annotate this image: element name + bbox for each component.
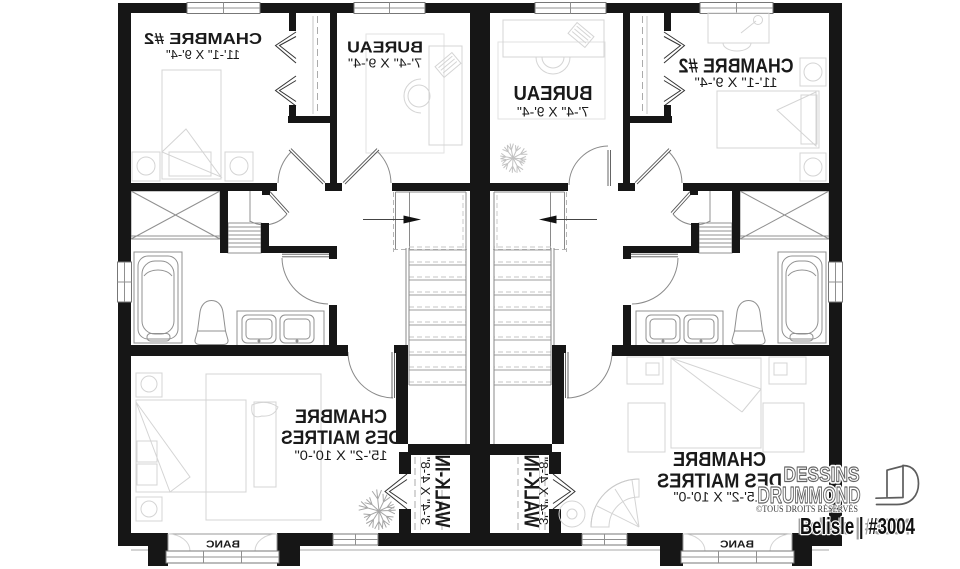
svg-text:3'-4" X 4'-8": 3'-4" X 4'-8" (418, 457, 433, 525)
svg-text:BANC: BANC (720, 539, 754, 551)
svg-text:BANC: BANC (206, 539, 240, 551)
svg-text:DES MAITRES: DES MAITRES (281, 428, 401, 449)
svg-text:BUREAU: BUREAU (514, 83, 593, 105)
svg-text:11'-1" X 9'-4": 11'-1" X 9'-4" (166, 48, 240, 62)
svg-text:11'-1" X 9'-4": 11'-1" X 9'-4" (694, 75, 777, 90)
svg-text:CHAMBRE: CHAMBRE (673, 448, 766, 471)
svg-text:7'-4" X 9'-4": 7'-4" X 9'-4" (348, 57, 422, 71)
svg-text:CHAMBRE #2: CHAMBRE #2 (144, 31, 262, 48)
svg-text:BUREAU: BUREAU (347, 40, 423, 57)
svg-text:15'-2" X 10'-0": 15'-2" X 10'-0" (673, 489, 762, 505)
svg-text:CHAMBRE: CHAMBRE (295, 407, 387, 428)
svg-text:7'-4" X 9'-4": 7'-4" X 9'-4" (517, 105, 589, 120)
svg-text:Belisle | #3004: Belisle | #3004 (800, 513, 915, 539)
svg-text:3'-4" X 4'-8": 3'-4" X 4'-8" (536, 457, 551, 525)
svg-text:15'-2" X 10'-0": 15'-2" X 10'-0" (294, 447, 387, 463)
